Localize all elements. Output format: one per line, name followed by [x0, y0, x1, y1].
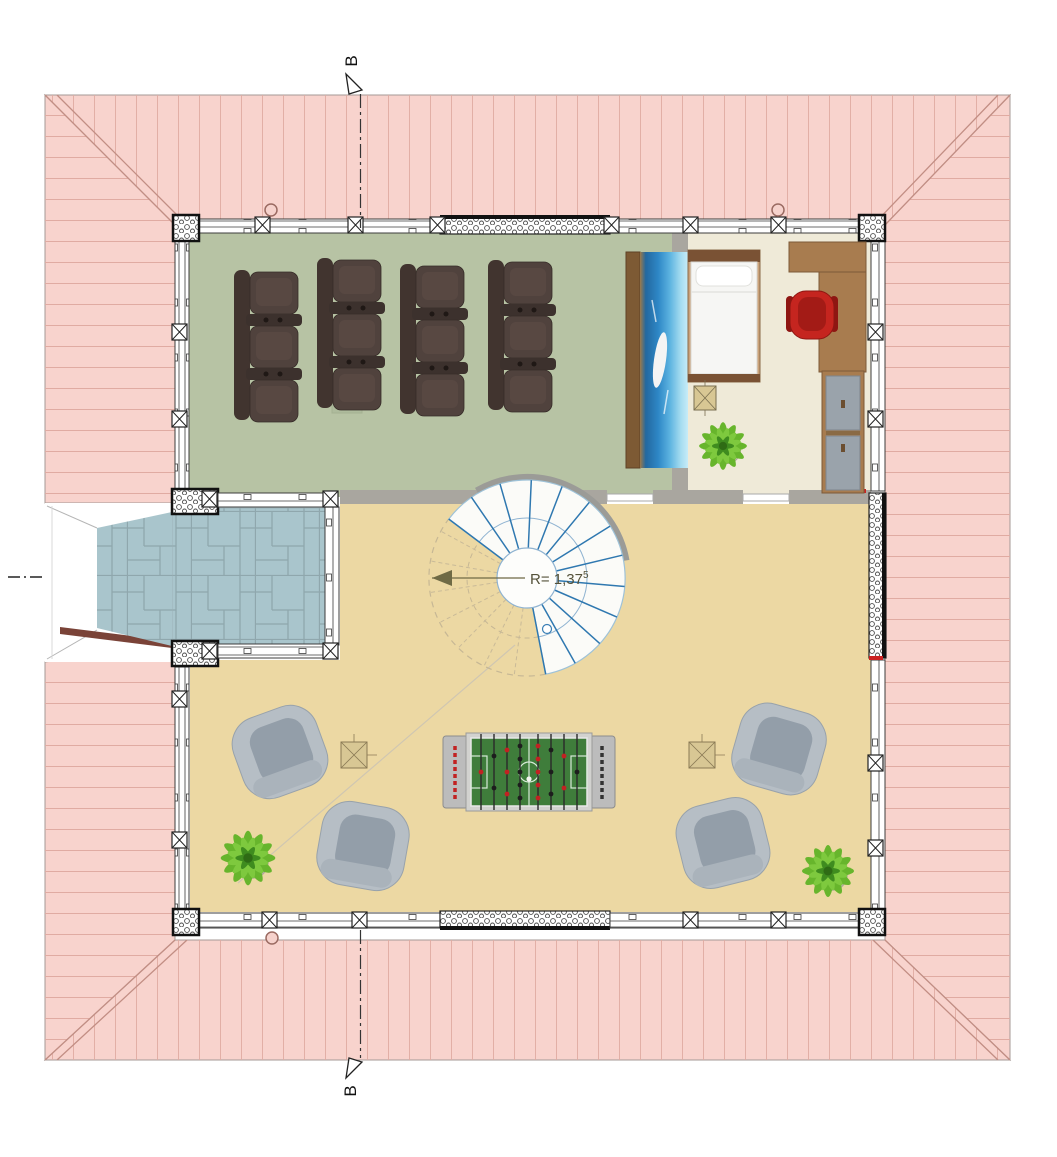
- foosball-table: [443, 733, 615, 811]
- section-label-bottom: B: [341, 1085, 360, 1096]
- corner-post-top-left: [173, 215, 199, 241]
- roof-top-battens: [45, 95, 1010, 225]
- roof-bottom-battens: [45, 940, 1010, 1060]
- window-band-top-left: [175, 219, 440, 233]
- section-label-top: B: [342, 55, 361, 66]
- vent-circle: [265, 204, 277, 216]
- wall-pier: [172, 691, 187, 707]
- corner-post-top-right: [859, 215, 885, 241]
- masonry-bottom: [440, 911, 610, 928]
- wall-pier: [683, 217, 698, 233]
- masonry-top-edge: [440, 215, 610, 219]
- roof-right-battens: [885, 95, 1010, 1060]
- section-arrow-bottom: [346, 1058, 362, 1078]
- balcony-tile-floor-outer: [97, 512, 172, 646]
- wall-pier: [868, 755, 883, 771]
- bed: [688, 250, 760, 382]
- wall-pier: [868, 840, 883, 856]
- pillow: [696, 266, 752, 286]
- wall-pier: [683, 912, 698, 928]
- cinema-screen: [626, 252, 688, 468]
- balcony-window-bottom: [218, 644, 323, 658]
- wall-pier: [202, 643, 217, 659]
- wall-pier: [771, 217, 786, 233]
- recliner-row-2: [317, 258, 385, 410]
- window-band-bottom-right: [610, 913, 871, 928]
- wall-pier: [771, 912, 786, 928]
- balcony-window-right: [325, 507, 339, 645]
- stair-radius-label: R= 1,375: [530, 570, 589, 588]
- wall-pier: [262, 912, 277, 928]
- office-chair-red: [786, 291, 838, 339]
- recliner-row-1: [234, 270, 302, 422]
- foosball-ball: [526, 776, 531, 781]
- wall-pier: [323, 643, 338, 659]
- wall-pier: [868, 324, 883, 340]
- floor-plan-page: R= 1,375: [0, 0, 1057, 1152]
- door-leaf-bedroom: [743, 494, 789, 501]
- wall-pier: [604, 217, 619, 233]
- red-tick: [869, 656, 883, 660]
- window-band-top-right: [610, 219, 871, 233]
- wall-pier: [323, 491, 338, 507]
- window-band-bottom-left: [175, 913, 440, 928]
- masonry-top: [440, 217, 610, 234]
- wall-pier: [255, 217, 270, 233]
- section-arrow-top: [346, 74, 362, 94]
- wall-pier: [172, 411, 187, 427]
- recliner-row-3: [400, 264, 468, 416]
- recliner-row-4: [488, 260, 556, 412]
- wall-pier: [202, 491, 217, 507]
- stair-newel-post: [543, 625, 552, 634]
- floor-plan-drawing: R= 1,375: [0, 0, 1057, 1152]
- wall-pier: [868, 411, 883, 427]
- door-leaf-theater: [607, 494, 653, 501]
- wall-pier: [352, 912, 367, 928]
- balcony-tile-floor: [172, 508, 332, 648]
- corner-post-bottom-left: [173, 909, 199, 935]
- masonry-right-edge: [882, 493, 886, 658]
- window-band-left-upper: [175, 241, 189, 491]
- wardrobe: [822, 371, 864, 493]
- wall-pier: [430, 217, 445, 233]
- wall-pier: [172, 324, 187, 340]
- window-band-right-lower: [871, 660, 885, 913]
- window-band-right-upper: [871, 241, 885, 491]
- balcony-window-top: [218, 493, 323, 507]
- wall-hall-segment-2: [653, 490, 743, 504]
- corner-post-bottom-right: [859, 909, 885, 935]
- vent-circle: [266, 932, 278, 944]
- masonry-bottom-edge: [440, 926, 610, 930]
- vent-circle: [772, 204, 784, 216]
- wall-pier: [172, 832, 187, 848]
